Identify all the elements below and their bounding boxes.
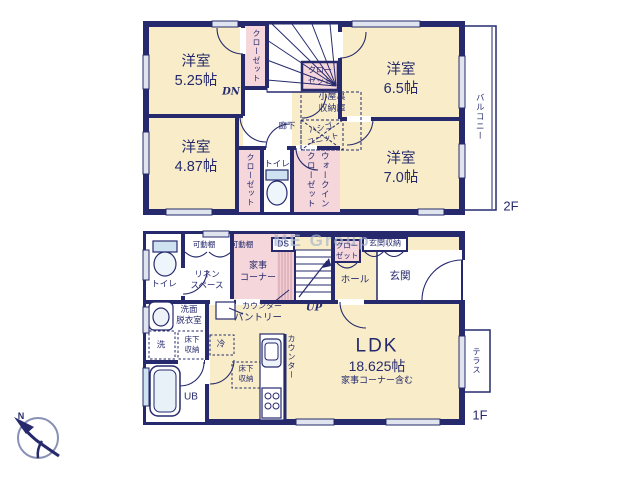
closet-525-area [245, 26, 267, 88]
closet-1f-box [334, 240, 360, 262]
pantry-box [216, 302, 235, 319]
terrace-outline [462, 330, 490, 392]
entry-storage-box [363, 238, 407, 251]
entrance-area [377, 250, 462, 302]
kitchen-unit [260, 334, 284, 420]
floorplan-drawing [0, 0, 640, 480]
washbasin-icon [149, 302, 173, 330]
toilet-icon-1f [153, 241, 177, 276]
compass-icon [14, 417, 59, 458]
balcony-outline [462, 26, 496, 210]
stove-icon [262, 388, 281, 418]
housework-counter [277, 252, 294, 302]
toilet-icon-2f [266, 170, 288, 205]
linen-area [183, 234, 232, 302]
bathtub-icon [150, 366, 180, 416]
walkin-closet-area [294, 150, 340, 212]
floorplan-canvas: ME Group 洋室 5.25帖 クローゼット DN クロー ゼット 小屋裏 … [0, 0, 640, 480]
closet-487-area [239, 150, 262, 212]
floor1-body [146, 234, 462, 422]
duct-space-box [272, 238, 294, 251]
